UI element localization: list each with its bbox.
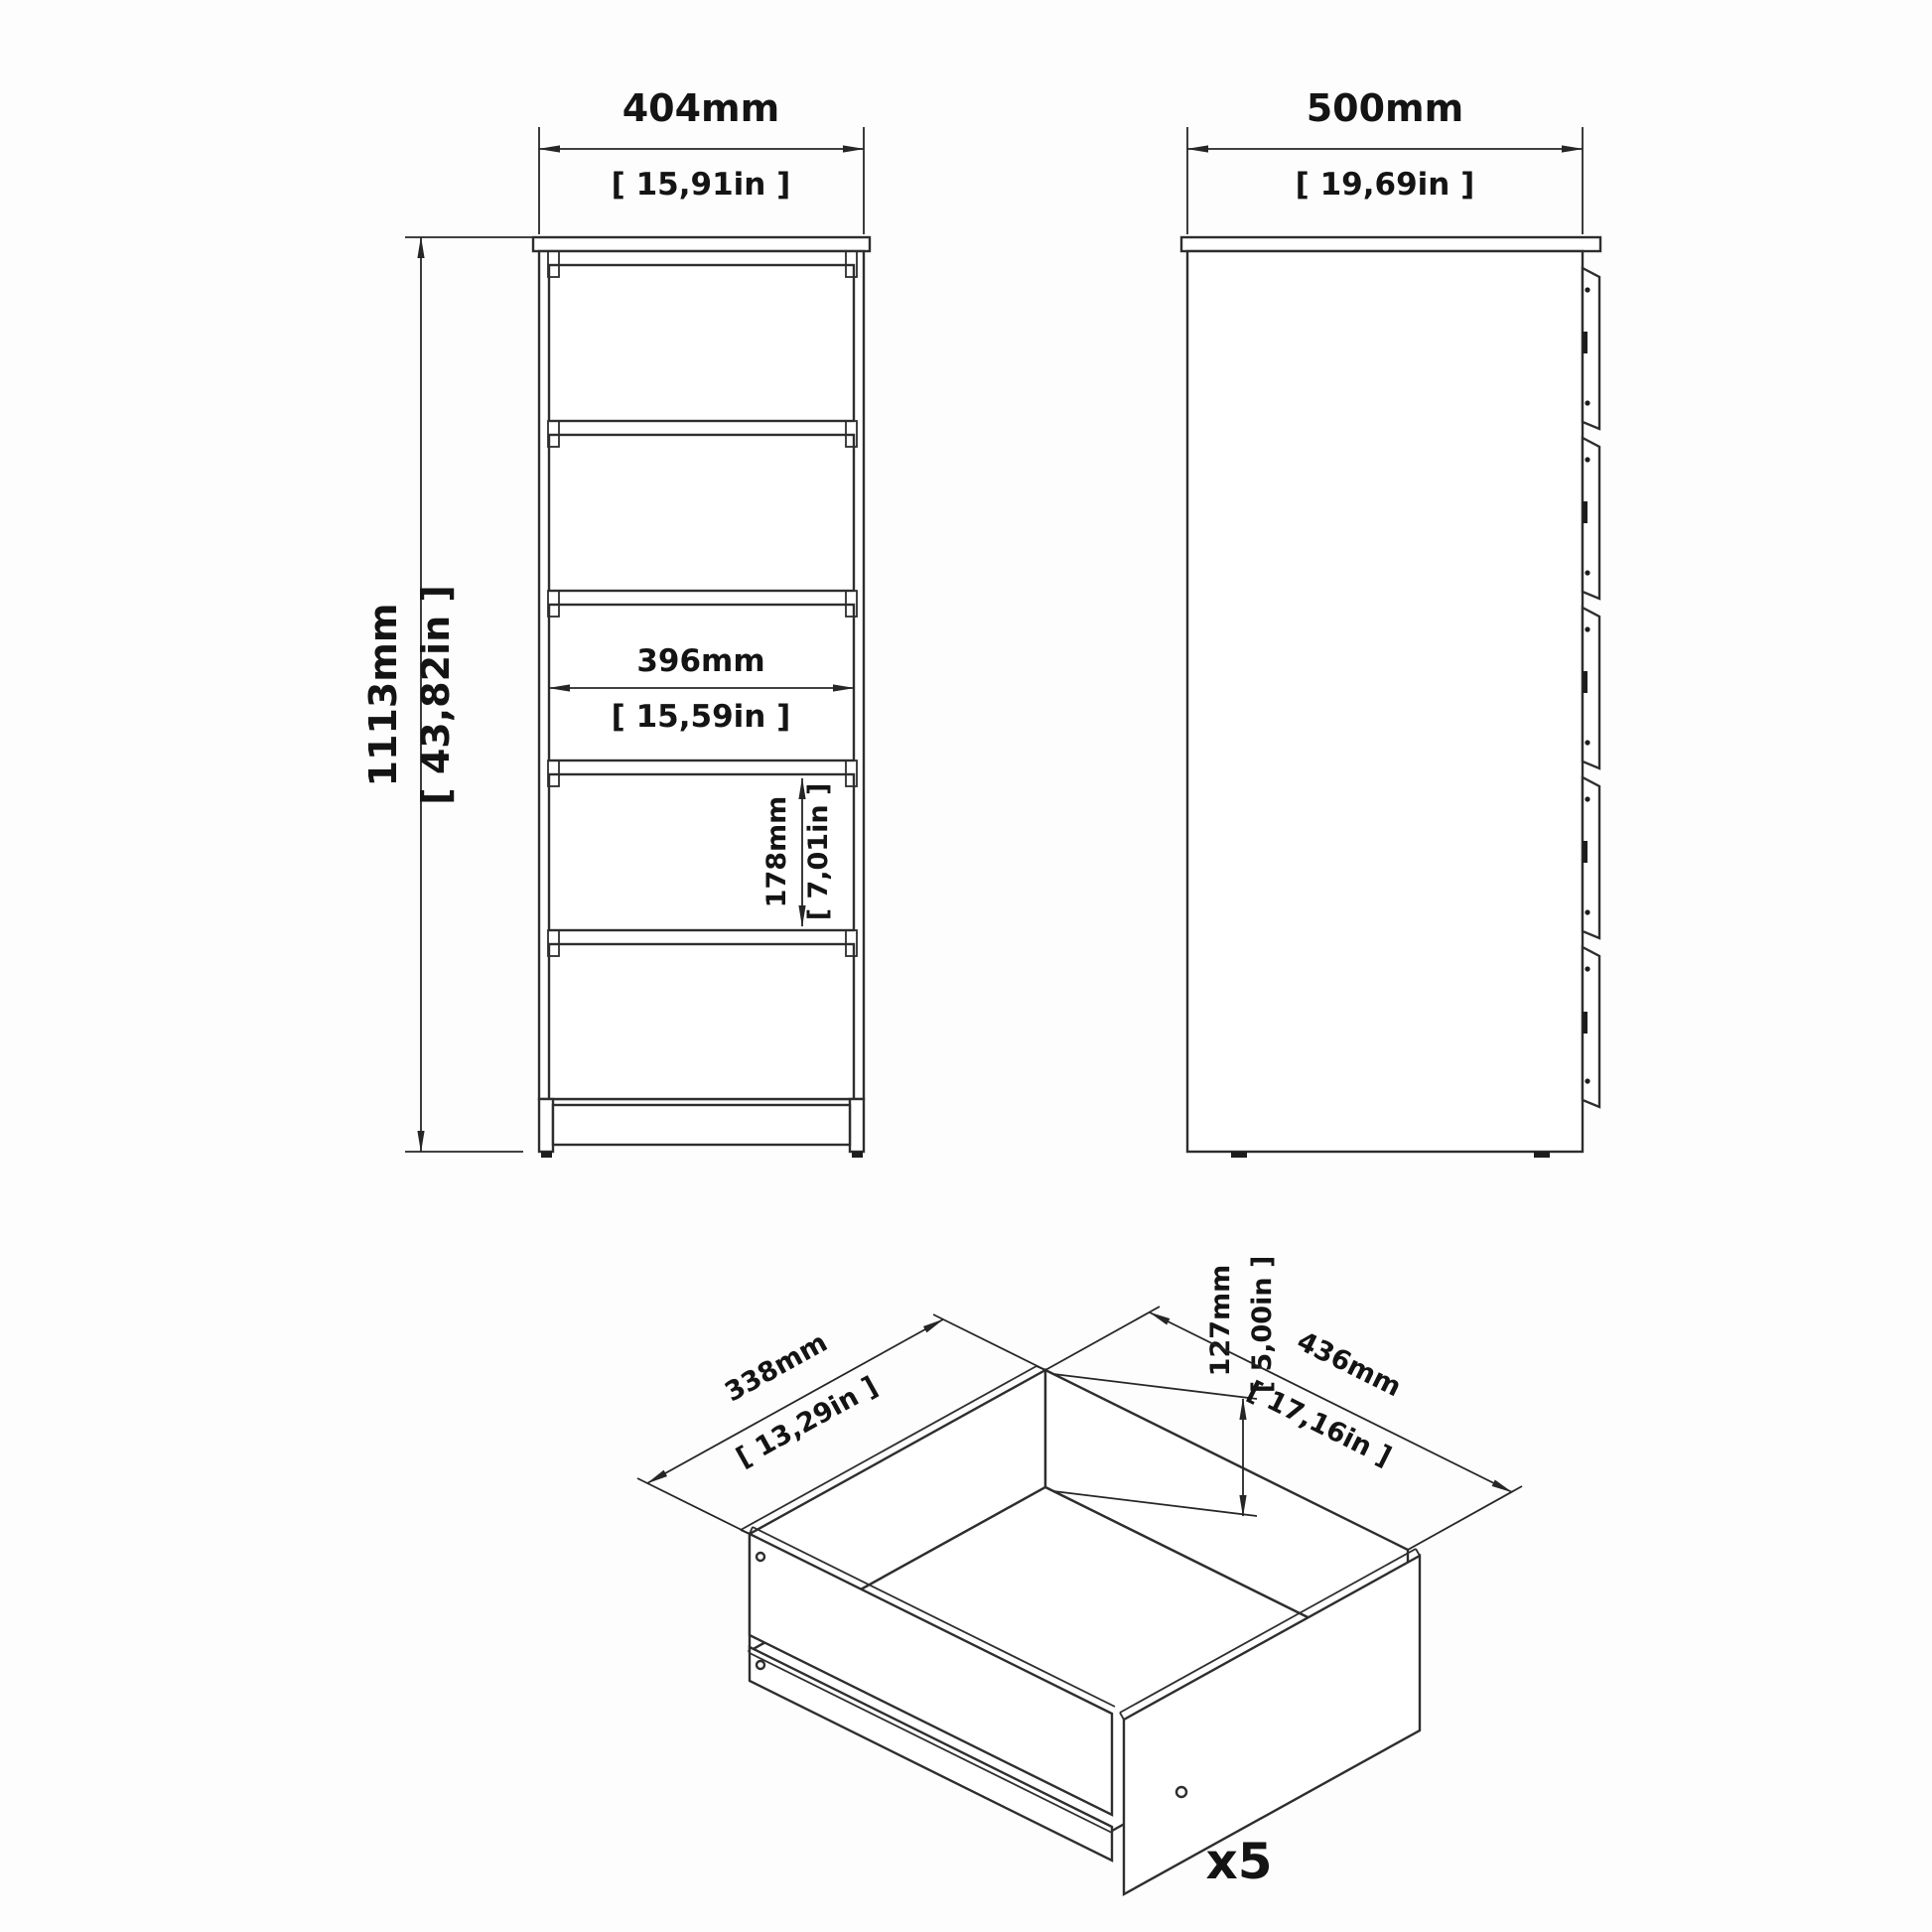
side-view: 500mm [ 19,69in ] <box>1181 86 1600 1158</box>
front-height-in: [ 43,82in ] <box>414 585 458 804</box>
front-plinth <box>539 1099 864 1158</box>
inner-width-in: [ 15,59in ] <box>612 699 791 735</box>
side-top-panel <box>1181 237 1600 251</box>
drawer-inner-height-in: [ 5,00in ] <box>1247 1256 1278 1394</box>
side-body <box>1187 251 1583 1152</box>
front-leg-right <box>850 1099 864 1152</box>
drawer-height-in: [ 7,01in ] <box>803 783 834 921</box>
side-depth-in: [ 19,69in ] <box>1296 167 1475 203</box>
front-height-dimension: 1113mm [ 43,82in ] <box>361 237 533 1152</box>
inner-width-mm: 396mm <box>636 643 764 679</box>
drawer-width-mm: 338mm <box>720 1327 833 1409</box>
side-foot-back <box>1534 1152 1550 1158</box>
front-drawer-3 <box>549 605 854 760</box>
front-width-mm: 404mm <box>622 86 780 130</box>
dimension-diagram: 404mm [ 15,91in ] 1113mm [ 43,82in ] <box>0 0 1932 1932</box>
front-top-panel <box>533 237 870 251</box>
drawer-quantity-label: x5 <box>1205 1833 1272 1890</box>
front-foot-left <box>541 1152 552 1158</box>
front-width-in: [ 15,91in ] <box>612 167 791 203</box>
front-drawer-1 <box>549 265 854 421</box>
side-depth-dimension: 500mm [ 19,69in ] <box>1187 86 1583 234</box>
side-drawer-fronts <box>1583 268 1599 1107</box>
front-width-dimension: 404mm [ 15,91in ] <box>539 86 864 234</box>
drawing-canvas: 404mm [ 15,91in ] 1113mm [ 43,82in ] <box>0 0 1932 1932</box>
side-foot-front <box>1231 1152 1247 1158</box>
front-view: 404mm [ 15,91in ] 1113mm [ 43,82in ] <box>361 86 870 1158</box>
drawer-height-mm: 178mm <box>761 796 792 908</box>
front-plinth-panel <box>553 1105 850 1145</box>
front-cabinet <box>533 237 870 1158</box>
front-leg-left <box>539 1099 553 1152</box>
drawer-detail-view: 338mm [ 13,29in ] 127mm [ 5,00in ] 436mm… <box>637 1256 1522 1894</box>
side-depth-mm: 500mm <box>1307 86 1464 130</box>
side-cabinet <box>1181 237 1600 1158</box>
front-drawer-5 <box>549 944 854 1099</box>
front-drawer-2 <box>549 435 854 591</box>
front-height-mm: 1113mm <box>361 604 405 787</box>
front-foot-right <box>852 1152 863 1158</box>
drawer-inner-height-mm: 127mm <box>1205 1265 1236 1377</box>
